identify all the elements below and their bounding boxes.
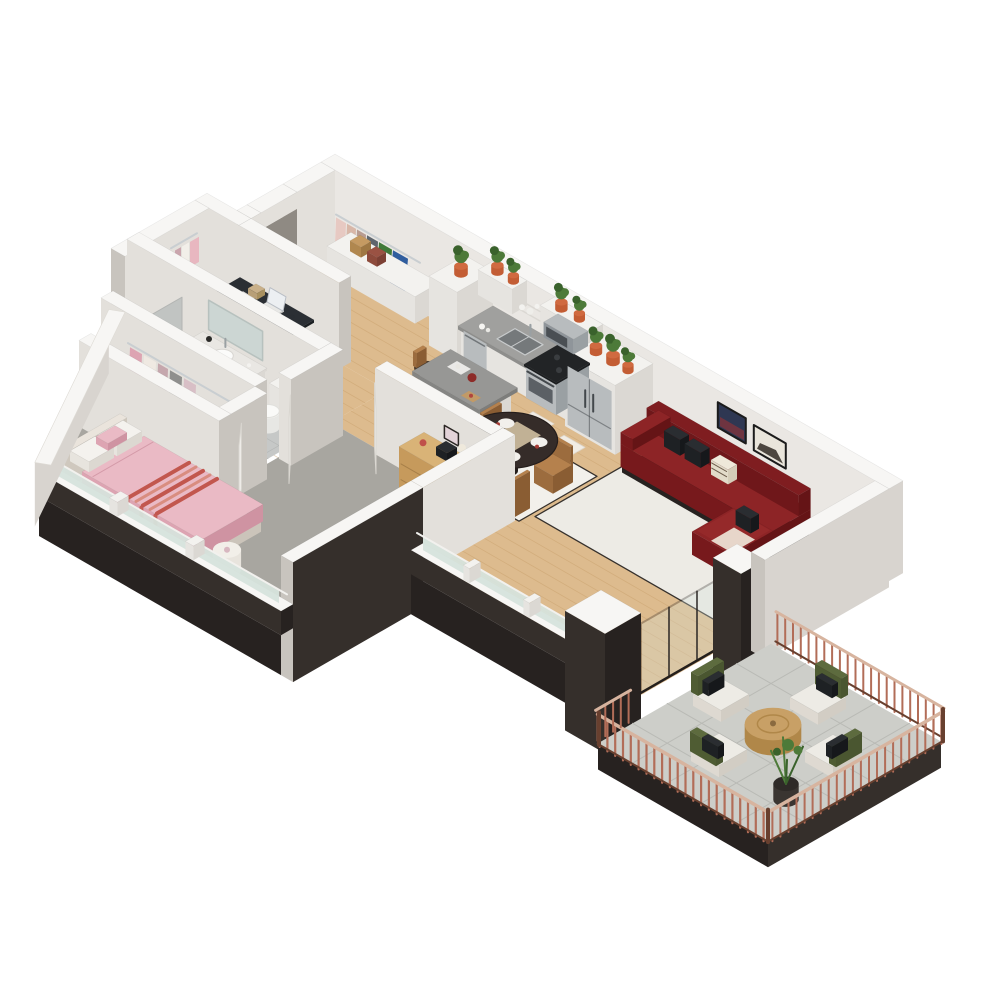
apartment-3d-floorplan	[0, 0, 1000, 1000]
floorplan-stage	[0, 0, 1000, 1000]
